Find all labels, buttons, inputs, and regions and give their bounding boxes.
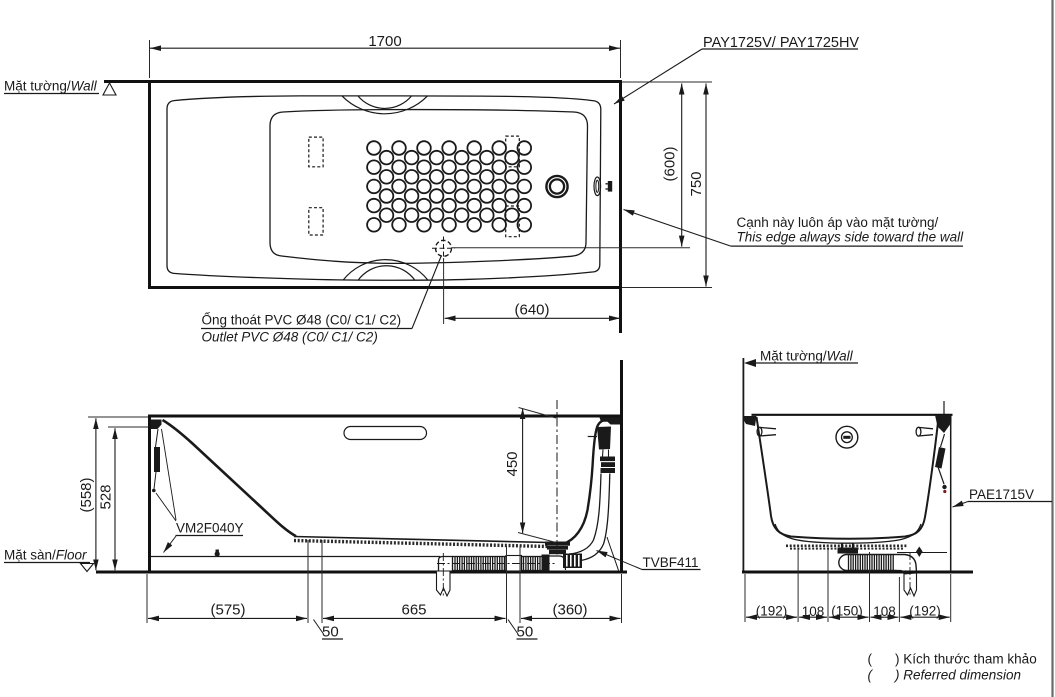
svg-text:Mặt tường/Wall: Mặt tường/Wall	[4, 79, 98, 94]
svg-text:(192): (192)	[909, 604, 941, 619]
svg-text:Mặt sàn/Floor: Mặt sàn/Floor	[4, 548, 87, 563]
svg-text:Cạnh này luôn áp vào mặt tường: Cạnh này luôn áp vào mặt tường/	[737, 215, 939, 230]
svg-text:(: (	[868, 652, 873, 667]
svg-text:(640): (640)	[514, 302, 549, 319]
svg-text:Ống thoát PVC Ø48 (C0/ C1/ C2): Ống thoát PVC Ø48 (C0/ C1/ C2)	[202, 313, 402, 328]
svg-text:PAE1715V: PAE1715V	[969, 487, 1034, 502]
svg-text:528: 528	[98, 484, 115, 509]
svg-text:1700: 1700	[368, 33, 401, 50]
svg-text:(360): (360)	[552, 602, 587, 619]
svg-text:50: 50	[517, 624, 534, 641]
svg-text:(600): (600)	[662, 146, 679, 181]
svg-text:) Referred dimension: ) Referred dimension	[893, 668, 1021, 683]
svg-text:108: 108	[802, 604, 825, 619]
svg-text:VM2F040Y: VM2F040Y	[176, 521, 244, 536]
svg-text:This edge always side toward t: This edge always side toward the wall	[737, 229, 965, 244]
svg-text:(192): (192)	[756, 604, 788, 619]
svg-text:Outlet PVC Ø48 (C0/ C1/ C2): Outlet PVC Ø48 (C0/ C1/ C2)	[202, 330, 378, 345]
svg-text:665: 665	[401, 602, 426, 619]
svg-text:(558): (558)	[78, 477, 95, 512]
svg-text:) Kích thước tham khảo: ) Kích thước tham khảo	[895, 652, 1037, 667]
svg-text:TVBF411: TVBF411	[643, 555, 699, 570]
svg-text:Mặt tường/Wall: Mặt tường/Wall	[760, 349, 854, 364]
svg-text:450: 450	[504, 451, 521, 476]
svg-text:(150): (150)	[831, 604, 863, 619]
svg-text:108: 108	[873, 604, 896, 619]
svg-text:(575): (575)	[210, 602, 245, 619]
svg-text:750: 750	[688, 171, 705, 196]
svg-text:50: 50	[322, 624, 339, 641]
